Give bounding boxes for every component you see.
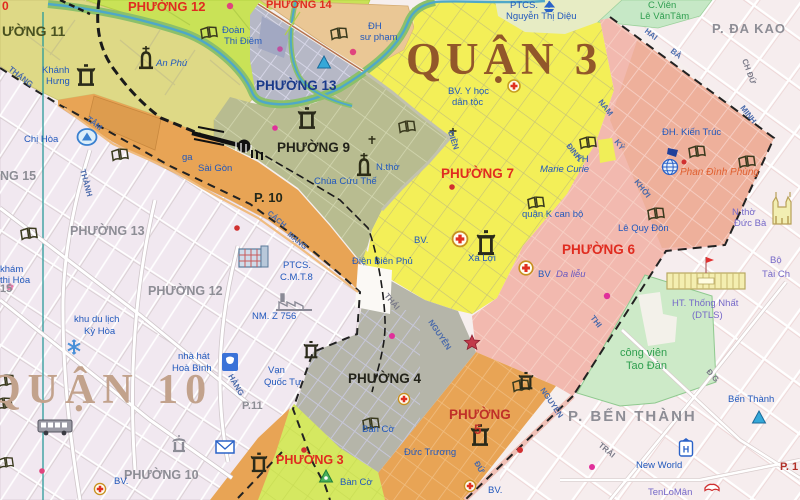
svg-text:P.11: P.11 [242, 400, 263, 412]
svg-text:PHƯỜNG 3: PHƯỜNG 3 [276, 452, 344, 467]
svg-text:PHƯỜNG 12: PHƯỜNG 12 [128, 0, 206, 14]
svg-text:P. BẾN THÀNH: P. BẾN THÀNH [568, 408, 697, 425]
svg-text:PHƯỜNG 10: PHƯỜNG 10 [124, 467, 199, 482]
svg-text:PHƯỜNG 14: PHƯỜNG 14 [266, 0, 332, 11]
svg-text:Xá Lợi: Xá Lợi [468, 253, 496, 264]
svg-text:HT. Thống Nhất: HT. Thống Nhất [672, 298, 739, 309]
svg-text:Marie Curie: Marie Curie [540, 164, 589, 175]
svg-text:PHƯỜNG 12: PHƯỜNG 12 [148, 283, 223, 298]
svg-text:Tài Ch: Tài Ch [762, 269, 790, 280]
svg-text:Hưng: Hưng [46, 76, 70, 87]
svg-text:NM. Z 756: NM. Z 756 [252, 311, 296, 322]
svg-text:H: H [683, 445, 690, 455]
svg-text:công viên: công viên [620, 347, 667, 359]
svg-text:ĐH: ĐH [368, 21, 382, 32]
svg-text:Điện Biên Phủ: Điện Biên Phủ [352, 256, 413, 267]
svg-text:Hoà Bình: Hoà Bình [172, 363, 212, 374]
svg-text:Đoàn: Đoàn [222, 25, 245, 36]
svg-text:BV.: BV. [414, 235, 428, 246]
svg-text:PHƯỜNG 13: PHƯỜNG 13 [70, 223, 145, 238]
svg-text:NG 15: NG 15 [0, 169, 36, 183]
svg-text:C.M.T.8: C.M.T.8 [280, 272, 313, 283]
svg-text:Tao Đàn: Tao Đàn [626, 360, 667, 372]
svg-text:khám: khám [0, 264, 23, 275]
svg-text:PTCS.: PTCS. [510, 0, 538, 11]
svg-text:P. ĐA KAO: P. ĐA KAO [712, 21, 786, 36]
svg-text:Bộ: Bộ [770, 255, 782, 266]
svg-text:Bến Thành: Bến Thành [728, 394, 774, 405]
svg-text:PHƯỜNG 6: PHƯỜNG 6 [562, 242, 635, 257]
svg-text:PHƯỜNG 4: PHƯỜNG 4 [348, 371, 421, 386]
svg-text:N.thờ: N.thờ [376, 162, 400, 173]
svg-text:Chùa Cứu Thế: Chùa Cứu Thế [314, 176, 377, 187]
svg-text:(DTLS): (DTLS) [692, 310, 723, 321]
svg-text:Đức Bà: Đức Bà [734, 218, 767, 229]
svg-text:P. 10: P. 10 [254, 190, 283, 205]
svg-text:Đức Trương: Đức Trương [404, 447, 456, 458]
svg-text:Vạn: Vạn [268, 365, 285, 376]
svg-text:Bàn Cờ: Bàn Cờ [362, 424, 395, 435]
svg-text:Chị Hòa: Chị Hòa [24, 134, 59, 145]
svg-text:ƯỜNG 11: ƯỜNG 11 [2, 22, 65, 39]
svg-text:Khánh: Khánh [42, 65, 69, 76]
svg-text:thị Hòa: thị Hòa [0, 275, 31, 286]
svg-text:Nguyễn Thị Diệu: Nguyễn Thị Diệu [506, 11, 577, 22]
svg-text:Thi Điềm: Thi Điềm [224, 36, 262, 47]
svg-text:PHƯỜNG 13: PHƯỜNG 13 [256, 78, 337, 93]
svg-text:Sài Gòn: Sài Gòn [198, 163, 232, 174]
svg-text:ga: ga [182, 152, 193, 163]
svg-text:An Phú: An Phú [155, 58, 188, 69]
svg-text:PHƯỜNG 7: PHƯỜNG 7 [441, 166, 514, 181]
svg-text:ĐH. Kiến Trúc: ĐH. Kiến Trúc [662, 127, 721, 138]
svg-text:PHƯỜNG: PHƯỜNG [449, 407, 511, 422]
svg-text:BV. Y học: BV. Y học [448, 86, 489, 97]
svg-text:Da liễu: Da liễu [556, 269, 586, 280]
svg-text:0: 0 [2, 0, 9, 13]
svg-text:PTCS.: PTCS. [283, 260, 311, 271]
svg-text:P. 1: P. 1 [780, 461, 798, 473]
svg-text:Phan Đình Phùng: Phan Đình Phùng [680, 167, 759, 178]
svg-text:Quốc Tự: Quốc Tự [264, 377, 302, 388]
svg-text:sư phạm: sư phạm [360, 32, 398, 43]
svg-text:QUẬN 3: QUẬN 3 [406, 34, 602, 84]
svg-text:TenLoMân: TenLoMân [648, 487, 692, 498]
svg-text:Lê Quy Đôn: Lê Quy Đôn [618, 223, 669, 234]
svg-text:dân tộc: dân tộc [452, 97, 483, 108]
svg-text:BV.: BV. [488, 485, 502, 496]
svg-text:nhà hát: nhà hát [178, 351, 210, 362]
svg-text:C.Viên: C.Viên [648, 0, 676, 11]
svg-text:Lê VănTâm: Lê VănTâm [640, 11, 689, 22]
svg-text:BV: BV [538, 269, 551, 280]
svg-text:Kỳ Hòa: Kỳ Hòa [84, 326, 116, 337]
svg-text:New World: New World [636, 460, 682, 471]
svg-text:Bàn Cờ: Bàn Cờ [340, 477, 373, 488]
svg-text:quận K can bộ: quận K can bộ [522, 209, 583, 220]
svg-text:N.thờ: N.thờ [732, 207, 756, 218]
svg-text:PHƯỜNG 9: PHƯỜNG 9 [277, 140, 350, 155]
svg-text:5: 5 [474, 422, 482, 437]
svg-text:khu du lịch: khu du lịch [74, 314, 119, 325]
svg-text:BV.: BV. [114, 476, 128, 487]
